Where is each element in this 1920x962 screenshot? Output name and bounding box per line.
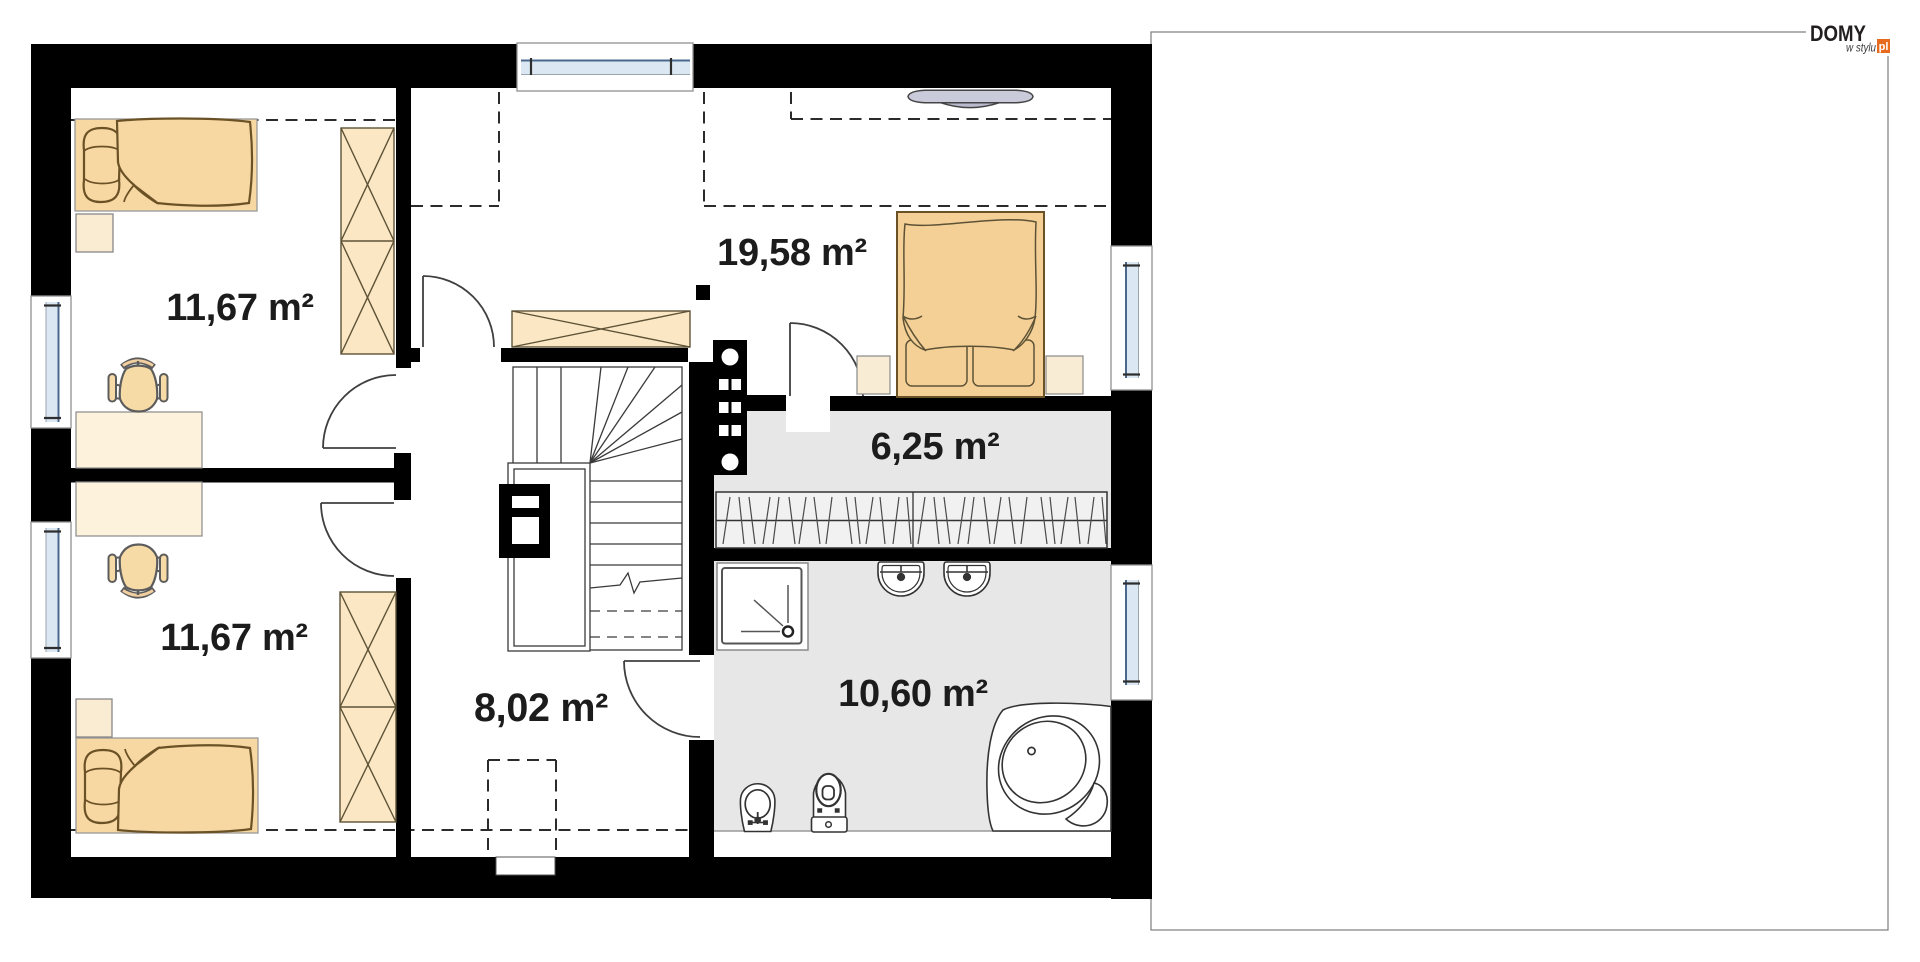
svg-text:10,60 m²: 10,60 m²	[838, 673, 988, 715]
svg-text:6,25 m²: 6,25 m²	[871, 426, 1000, 468]
svg-text:w stylu: w stylu	[1846, 41, 1876, 55]
svg-text:11,67 m²: 11,67 m²	[166, 287, 314, 329]
svg-text:8,02 m²: 8,02 m²	[474, 686, 608, 730]
svg-text:19,58 m²: 19,58 m²	[717, 232, 867, 274]
svg-text:11,67 m²: 11,67 m²	[160, 617, 308, 659]
svg-text:pl: pl	[1879, 41, 1889, 53]
